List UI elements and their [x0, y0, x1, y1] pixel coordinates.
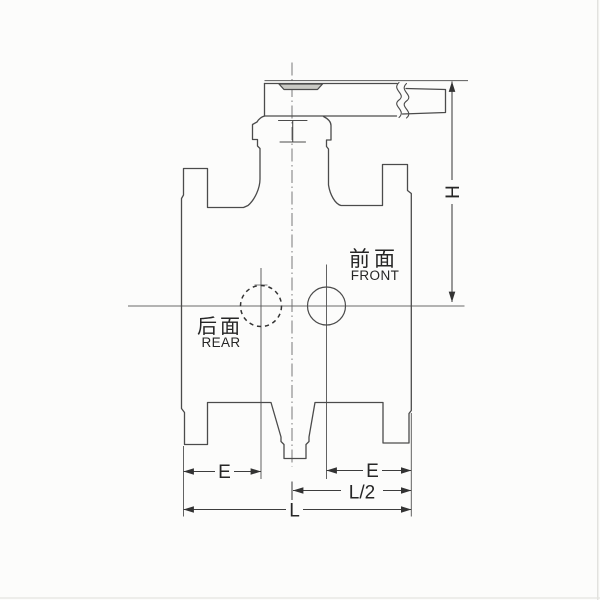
stem-section-mark [279, 121, 308, 143]
dim-label-overall-length: L [289, 501, 300, 522]
scan-edge-bottom [0, 597, 600, 598]
extension-lines [184, 81, 469, 517]
rear-face-label-en: REAR [201, 335, 240, 350]
centerlines [128, 63, 465, 467]
body-outline [182, 116, 412, 459]
valve-body [182, 116, 412, 459]
break-symbol [397, 83, 402, 118]
valve-elevation-drawing: 前面 FRONT 后面 REAR H E E L/2 L [0, 0, 600, 600]
dim-label-height: H [443, 185, 464, 199]
handle-right-segment [403, 89, 446, 115]
label-masks [215, 180, 461, 518]
front-face-label-en: FRONT [351, 268, 400, 283]
stem-nut-seat [279, 84, 323, 90]
dim-label-e-left: E [218, 462, 231, 483]
dim-label-e-right: E [366, 461, 379, 482]
scan-edge-right [597, 0, 598, 600]
valve-drawing-page: 前面 FRONT 后面 REAR H E E L/2 L [0, 0, 600, 600]
dim-label-half-length: L/2 [349, 483, 375, 504]
